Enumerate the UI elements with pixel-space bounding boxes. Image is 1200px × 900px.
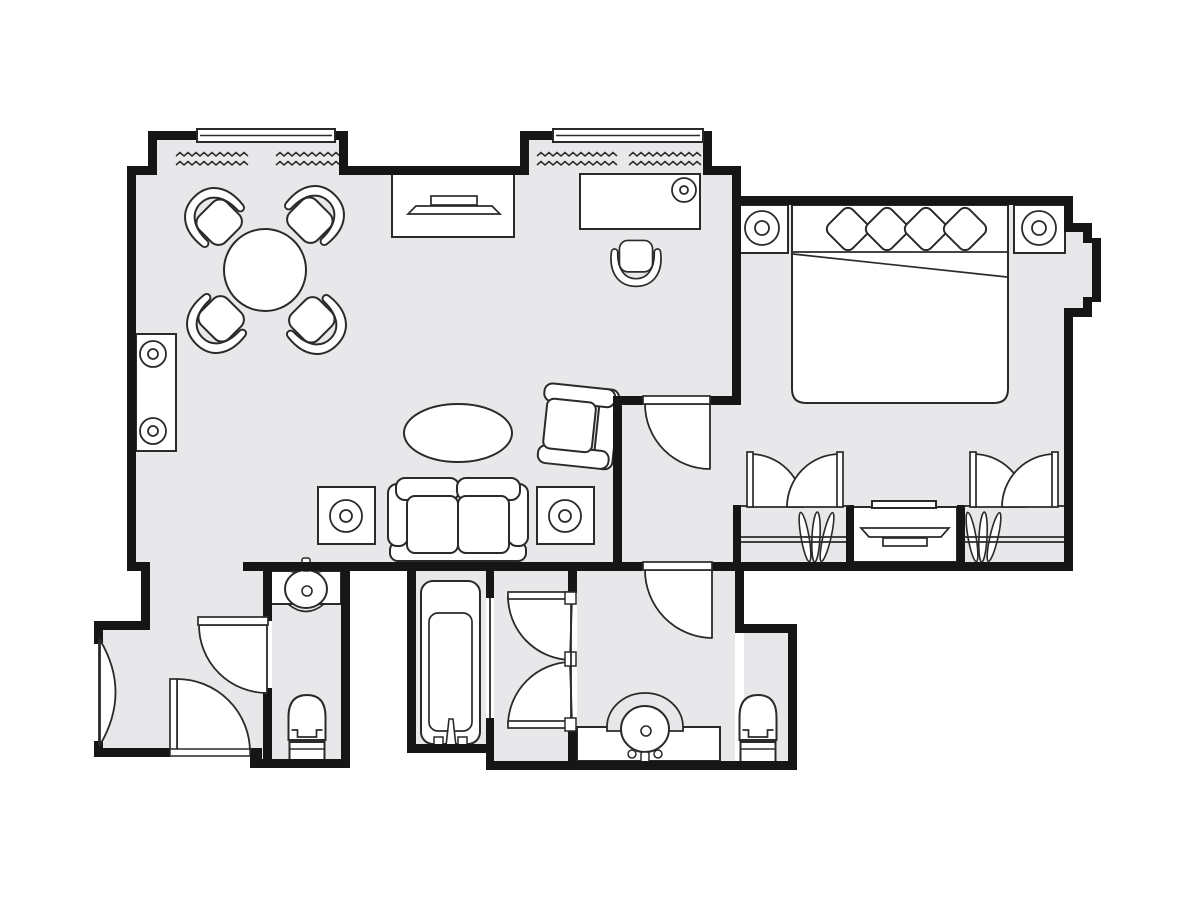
wall bbox=[733, 505, 741, 562]
floor-area bbox=[157, 140, 339, 175]
floor-plan-svg bbox=[0, 0, 1200, 900]
end-table-lamp-left-inner bbox=[340, 510, 352, 522]
wall bbox=[1083, 223, 1092, 243]
wall bbox=[148, 131, 197, 140]
tv-bedroom-stand bbox=[883, 538, 927, 546]
wall bbox=[345, 166, 522, 175]
bath-toilet bbox=[740, 695, 777, 762]
bath-toilet-bowl bbox=[740, 695, 777, 740]
sofa bbox=[388, 478, 528, 561]
bed bbox=[792, 205, 1008, 403]
wall bbox=[335, 131, 348, 140]
console-lamp-2-inner bbox=[148, 426, 158, 436]
wall bbox=[613, 396, 622, 571]
powder-toilet bbox=[289, 695, 326, 762]
wall bbox=[735, 562, 744, 633]
wall bbox=[568, 761, 797, 770]
wall bbox=[407, 744, 494, 753]
powder-sink-drain bbox=[302, 586, 312, 596]
coffee-table bbox=[404, 404, 512, 462]
bath-toilet-tank bbox=[741, 742, 776, 762]
nightstand-lamp-left-inner bbox=[755, 221, 769, 235]
bath-sink-tap-icon bbox=[628, 750, 636, 758]
sofa-seat-cushion bbox=[458, 496, 509, 553]
hallway-door-leaf bbox=[643, 396, 710, 404]
tv-living-room-stand bbox=[431, 196, 477, 205]
wall bbox=[712, 562, 1073, 571]
wall bbox=[141, 562, 150, 630]
wall bbox=[243, 562, 643, 571]
wall bbox=[732, 196, 1073, 205]
wall bbox=[613, 396, 643, 405]
wall bbox=[127, 166, 136, 571]
tv-living-room-screen bbox=[408, 206, 500, 214]
dressing-door-leaf-upper bbox=[508, 592, 570, 599]
armchair-seat bbox=[543, 398, 597, 453]
nightstand-lamp-right-inner bbox=[1032, 221, 1046, 235]
wall bbox=[788, 624, 797, 770]
powder-room-door-leaf bbox=[198, 617, 268, 625]
wall bbox=[957, 505, 965, 562]
wall bbox=[486, 761, 577, 770]
dresser-notch bbox=[872, 501, 936, 508]
closet-right-leaf-2 bbox=[1052, 452, 1058, 507]
wall bbox=[1064, 308, 1073, 571]
entry-threshold bbox=[170, 749, 250, 756]
bathroom-door-leaf bbox=[643, 562, 712, 570]
floor-area bbox=[529, 140, 703, 175]
closet-left-leaf-2 bbox=[837, 452, 843, 507]
desk-chair-seat bbox=[619, 240, 652, 271]
powder-toilet-bowl bbox=[289, 695, 326, 740]
wall bbox=[1092, 238, 1101, 302]
wall bbox=[735, 624, 797, 633]
sofa-seat-cushion bbox=[407, 496, 458, 553]
closet-left-leaf-1 bbox=[747, 452, 753, 507]
wall bbox=[710, 396, 741, 405]
floor-plan-image bbox=[0, 0, 1200, 900]
wall bbox=[94, 748, 170, 757]
wall bbox=[407, 562, 416, 753]
console-lamp-1-inner bbox=[148, 349, 158, 359]
floor-area bbox=[1083, 243, 1092, 297]
wall bbox=[341, 562, 350, 768]
hinge-jamb bbox=[565, 718, 576, 731]
wall bbox=[263, 562, 272, 621]
desk-lamp-inner bbox=[680, 186, 688, 194]
wall bbox=[94, 621, 150, 630]
tv-bedroom-screen bbox=[861, 528, 949, 537]
dining-table bbox=[224, 229, 306, 311]
wall bbox=[263, 688, 272, 768]
wall bbox=[846, 505, 854, 562]
wall bbox=[568, 562, 577, 593]
end-table-lamp-right-inner bbox=[559, 510, 571, 522]
entry-door-leaf bbox=[170, 679, 177, 752]
closet-right-leaf-1 bbox=[970, 452, 976, 507]
bathtub bbox=[421, 581, 480, 746]
bathtub-inner bbox=[429, 613, 472, 731]
wall bbox=[703, 131, 712, 175]
bath-sink-tap-icon bbox=[654, 750, 662, 758]
wall bbox=[520, 131, 553, 140]
bath-sink bbox=[621, 706, 669, 765]
armchair bbox=[537, 383, 620, 470]
dressing-door-leaf-lower bbox=[508, 721, 570, 728]
bath-sink-drain bbox=[641, 726, 651, 736]
floor-area bbox=[1064, 232, 1083, 308]
hinge-jamb bbox=[565, 592, 576, 604]
wall bbox=[486, 562, 494, 598]
